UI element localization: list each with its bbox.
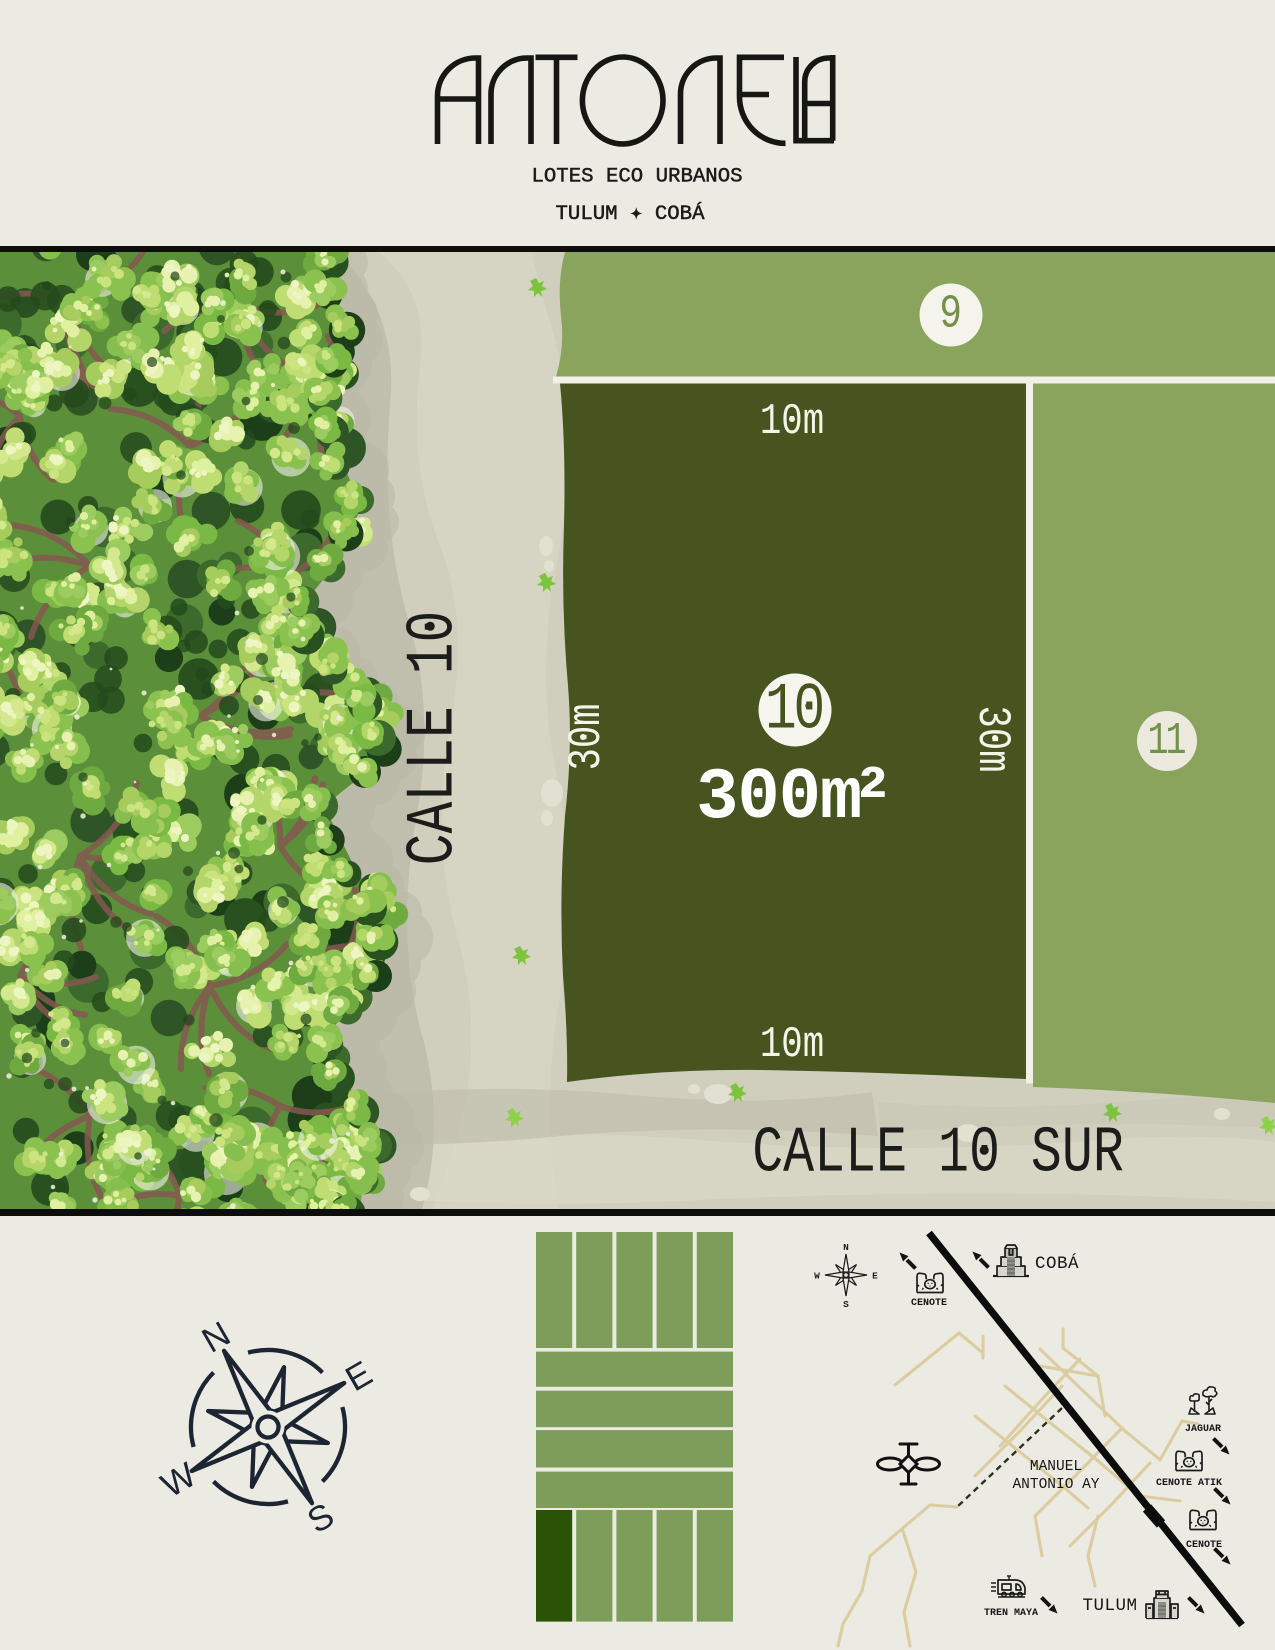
svg-text:N: N [196, 1314, 237, 1360]
svg-text:CENOTE ATIK: CENOTE ATIK [1156, 1478, 1222, 1489]
svg-text:W: W [155, 1455, 203, 1505]
svg-text:CENOTE: CENOTE [911, 1298, 947, 1309]
svg-text:S: S [301, 1496, 341, 1541]
svg-text:E: E [339, 1354, 379, 1399]
svg-text:W: W [814, 1271, 820, 1282]
svg-text:MANUEL: MANUEL [1030, 1459, 1082, 1475]
svg-text:S: S [843, 1299, 849, 1310]
svg-text:E: E [872, 1271, 878, 1282]
svg-text:TULUM: TULUM [1082, 1596, 1137, 1616]
svg-text:COBÁ: COBÁ [1035, 1252, 1079, 1274]
svg-text:N: N [843, 1242, 849, 1253]
svg-text:ANTONIO AY: ANTONIO AY [1012, 1477, 1099, 1493]
svg-text:TREN MAYA: TREN MAYA [984, 1608, 1038, 1619]
svg-text:JAGUAR: JAGUAR [1185, 1424, 1221, 1435]
